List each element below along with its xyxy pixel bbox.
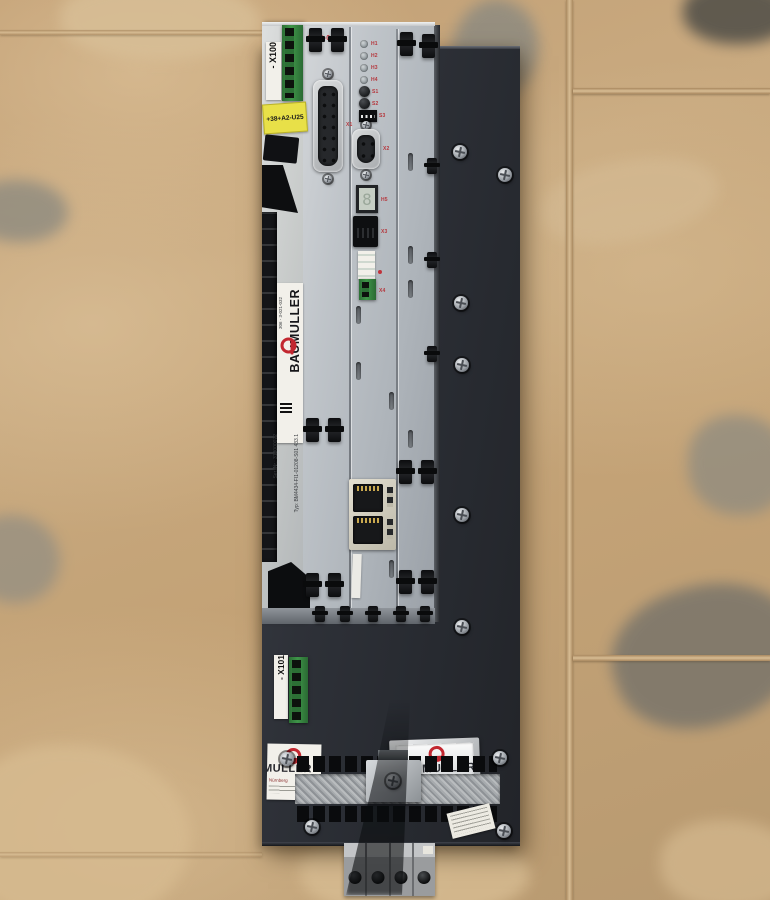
status-led [360, 76, 368, 84]
reset-button[interactable] [359, 86, 370, 97]
pinout-sticker [358, 251, 375, 279]
tile-grout-horizontal [573, 655, 770, 661]
phillips-screw [455, 508, 469, 522]
vent-slot [408, 280, 413, 298]
ejector-clip [340, 606, 350, 622]
button-designator: S1 [372, 89, 379, 95]
jack-designator: X3 [381, 229, 388, 235]
vent-slot [356, 362, 361, 380]
phillips-screw [453, 145, 467, 159]
ejector-clip [309, 28, 322, 52]
x101-terminal-connector [289, 657, 308, 723]
ejector-clip [427, 158, 437, 174]
status-led [360, 64, 368, 72]
display-glyph: 8 [362, 190, 372, 209]
dsub-screw [362, 171, 370, 179]
brand-label-vertical: BAUMULLER 306 - 3-021-032 [277, 283, 303, 443]
db9-designator: X2 [383, 146, 390, 152]
tile-grout-vertical [566, 0, 573, 900]
ejector-clip [427, 252, 437, 268]
terminal-segment [414, 843, 435, 896]
ejector-clip [421, 460, 434, 484]
button-designator: S2 [372, 101, 379, 107]
x100-terminal-connector [282, 25, 303, 101]
ejector-clip [427, 346, 437, 362]
floor-patch [688, 415, 770, 515]
vent-slot [389, 560, 394, 578]
function-button[interactable] [359, 98, 370, 109]
datamatrix-code [280, 401, 292, 413]
floor-patch [0, 515, 60, 603]
floor-patch [683, 0, 770, 44]
ethernet-port-b[interactable] [353, 516, 383, 544]
phillips-screw [498, 168, 512, 182]
vent-slot [408, 430, 413, 448]
baumuller-logo [281, 341, 294, 355]
floor-patch [0, 180, 68, 242]
brand-name-vertical: BAUMULLER [288, 289, 302, 373]
module-edge-shadow [434, 25, 440, 622]
seven-segment-display: 8 [356, 185, 378, 213]
ejector-clip [400, 32, 413, 56]
ejector-clip [306, 573, 319, 597]
phillips-screw [455, 358, 469, 372]
muller-label-subtext: Nürnberg [269, 778, 288, 783]
phillips-screw [455, 620, 469, 634]
dsub-screw [324, 175, 332, 183]
phillips-screw [454, 296, 468, 310]
module-seam [396, 29, 398, 620]
ejector-clip [306, 418, 319, 442]
phillips-screw [280, 752, 294, 766]
ejector-clip [328, 573, 341, 597]
ejector-clip [422, 34, 435, 58]
ejector-clip [399, 460, 412, 484]
ejector-clip [396, 606, 406, 622]
ejector-clip [331, 28, 344, 52]
ejector-clip [368, 606, 378, 622]
x100-label: - X100 [266, 42, 281, 100]
vent-slot [389, 392, 394, 410]
db9-socket [357, 135, 375, 163]
x101-label: - X101 [274, 655, 288, 719]
phillips-screw [497, 824, 511, 838]
ethernet-port-a[interactable] [353, 484, 383, 512]
photo-stage: - X100 +38+A2-U25 BAUMULLER 306 - 3-021-… [0, 0, 770, 900]
ethernet-sticker [351, 554, 362, 598]
tile-grout-horizontal [0, 852, 262, 857]
brand-part-no: 306 - 3-021-032 [278, 297, 283, 329]
led-designator: H3 [371, 65, 378, 71]
ejector-clip [421, 570, 434, 594]
led-designator: H2 [371, 53, 378, 59]
tile-grout-horizontal [0, 30, 262, 35]
tile-grout-horizontal [573, 88, 770, 94]
x100-label-text: - X100 [266, 42, 281, 69]
vent-slot [408, 246, 413, 264]
led-designator: H1 [371, 41, 378, 47]
serial-line: Ser. Nr.: 313000072 [273, 434, 279, 478]
phillips-screw [305, 820, 319, 834]
signal-terminal-connector [359, 279, 376, 300]
dsub-screw [362, 121, 370, 129]
terminal-holes [285, 28, 294, 98]
status-led [360, 40, 368, 48]
red-indicator-dot [378, 270, 382, 274]
ejector-clip [315, 606, 325, 622]
vent-slot [356, 306, 361, 324]
dip-switch[interactable] [359, 110, 377, 122]
terminal-designator: X4 [379, 288, 386, 294]
x101-label-text: - X101 [274, 655, 288, 680]
db9-connector [352, 129, 380, 169]
ethernet-led-window [387, 519, 393, 539]
service-jack[interactable] [353, 216, 378, 247]
display-designator: H5 [381, 197, 388, 203]
vent-slot [408, 153, 413, 171]
floor-patch [534, 142, 727, 258]
type-line: Typ: BM4434-FI1-01208-S01 433.1 [294, 434, 300, 512]
dsub-screw [324, 70, 332, 78]
ethernet-housing [349, 479, 396, 550]
ejector-clip [399, 570, 412, 594]
db15-connector [313, 80, 343, 172]
ethernet-led-window [387, 487, 393, 507]
location-tag-label: +38+A2-U25 [262, 102, 308, 135]
phillips-screw [493, 751, 507, 765]
dip-designator: S3 [379, 113, 386, 119]
ejector-clip [420, 606, 430, 622]
psu-latch [263, 134, 300, 163]
floor-patch [0, 745, 190, 900]
terminal-holes [292, 660, 301, 720]
ejector-clip [328, 418, 341, 442]
led-designator: H4 [371, 77, 378, 83]
location-tag-text: +38+A2-U25 [266, 113, 304, 123]
floor-patch [660, 820, 770, 900]
db15-socket [318, 86, 338, 166]
type-label: Typ: BM4434-FI1-01208-S01 433.1 Ser. Nr.… [270, 432, 302, 572]
status-led [360, 52, 368, 60]
db15-designator: X1 [346, 122, 353, 128]
